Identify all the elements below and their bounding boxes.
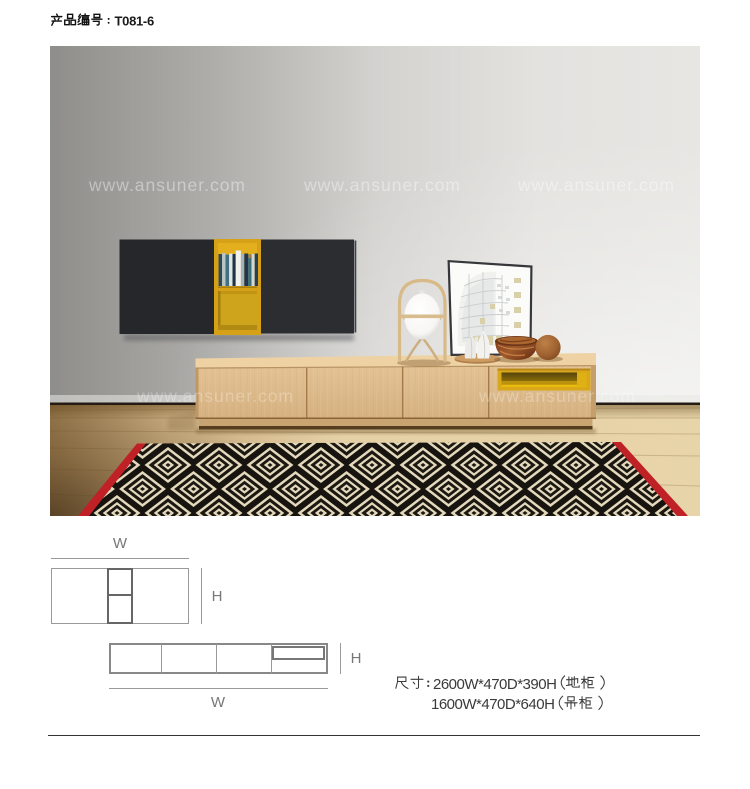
svg-text:www.ansuner.com: www.ansuner.com [478, 386, 636, 406]
svg-text:www.ansuner.com: www.ansuner.com [136, 386, 294, 406]
svg-text:www.ansuner.com: www.ansuner.com [88, 175, 246, 195]
svg-text:www.ansuner.com: www.ansuner.com [517, 175, 675, 195]
svg-text:T081-6: T081-6 [115, 14, 154, 29]
svg-text:1600W*470D*640H: 1600W*470D*640H [431, 696, 554, 713]
svg-text:www.ansuner.com: www.ansuner.com [303, 175, 461, 195]
svg-text:2600W*470D*390H: 2600W*470D*390H [433, 676, 556, 693]
